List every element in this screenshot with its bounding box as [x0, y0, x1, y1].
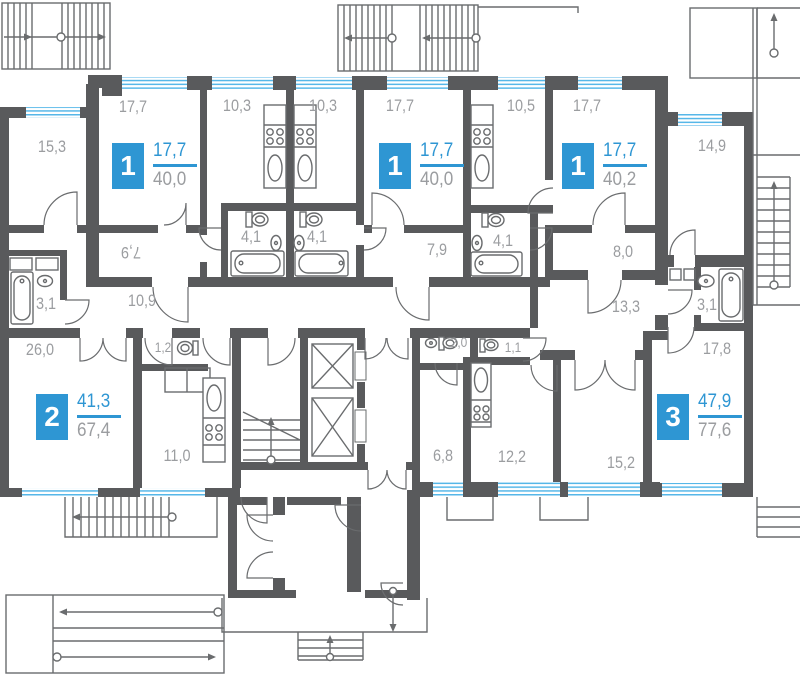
- apartment-badge: 1 17,7 40,2: [562, 140, 647, 191]
- apartment-rooms-count: 2: [36, 394, 68, 440]
- total-area: 40,2: [603, 169, 643, 191]
- total-area: 77,6: [698, 420, 738, 442]
- room-area-label: 13,3: [612, 297, 640, 317]
- apartment-areas: 17,7 40,0: [420, 140, 464, 191]
- room-area-label: 2,0: [451, 334, 468, 350]
- living-area: 17,7: [603, 140, 643, 162]
- room-area-label: 10,3: [223, 96, 251, 116]
- room-area-label: 10,3: [309, 96, 337, 116]
- apartment-badge: 1 17,7 40,0: [112, 140, 197, 191]
- room-area-label: 4,1: [493, 231, 513, 251]
- fraction-line: [153, 164, 197, 167]
- room-area-label: 4,1: [241, 227, 261, 247]
- room-area-label: 14,9: [698, 136, 726, 156]
- fraction-line: [77, 415, 121, 418]
- living-area: 17,7: [153, 140, 193, 162]
- living-area: 17,7: [420, 140, 460, 162]
- total-area: 40,0: [153, 169, 193, 191]
- room-area-label: 26,0: [26, 340, 54, 360]
- apartment-badge: 2 41,3 67,4: [36, 391, 121, 442]
- apartment-rooms-count: 1: [112, 143, 144, 189]
- room-area-label: 17,7: [119, 97, 147, 117]
- room-area-label: 1,2: [155, 339, 172, 355]
- total-area: 40,0: [420, 169, 460, 191]
- room-area-label: 10,9: [128, 291, 156, 311]
- room-area-label: 6,8: [433, 446, 453, 466]
- apartment-areas: 47,9 77,6: [698, 391, 742, 442]
- room-area-label: 12,2: [498, 447, 526, 467]
- room-area-label: 7,9: [121, 242, 141, 262]
- fraction-line: [420, 164, 464, 167]
- room-area-label: 17,7: [573, 96, 601, 116]
- apartment-badge: 3 47,9 77,6: [657, 391, 742, 442]
- apartment-areas: 41,3 67,4: [77, 391, 121, 442]
- apartment-areas: 17,7 40,0: [153, 140, 197, 191]
- room-area-label: 3,1: [697, 295, 717, 315]
- fraction-line: [603, 164, 647, 167]
- apartment-rooms-count: 1: [562, 143, 594, 189]
- room-area-label: 15,3: [38, 137, 66, 157]
- apartment-badge: 1 17,7 40,0: [379, 140, 464, 191]
- room-area-label: 1,1: [505, 339, 522, 355]
- room-area-label: 15,2: [607, 453, 635, 473]
- room-area-label: 7,9: [427, 240, 447, 260]
- room-area-label: 17,8: [703, 339, 731, 359]
- apartment-rooms-count: 1: [379, 143, 411, 189]
- room-area-label: 4,1: [307, 227, 327, 247]
- fraction-line: [698, 415, 742, 418]
- floor-plan: 15,3 17,7 10,3 10,3 17,7 10,5 17,7 14,9 …: [0, 0, 800, 675]
- room-area-label: 3,1: [36, 294, 56, 314]
- room-area-label: 17,7: [386, 96, 414, 116]
- apartment-areas: 17,7 40,2: [603, 140, 647, 191]
- labels-layer: 15,3 17,7 10,3 10,3 17,7 10,5 17,7 14,9 …: [0, 0, 800, 675]
- room-area-label: 10,5: [507, 96, 535, 116]
- room-area-label: 11,0: [163, 446, 190, 466]
- living-area: 41,3: [77, 391, 117, 413]
- room-area-label: 8,0: [613, 242, 633, 262]
- total-area: 67,4: [77, 420, 117, 442]
- living-area: 47,9: [698, 391, 738, 413]
- apartment-rooms-count: 3: [657, 394, 689, 440]
